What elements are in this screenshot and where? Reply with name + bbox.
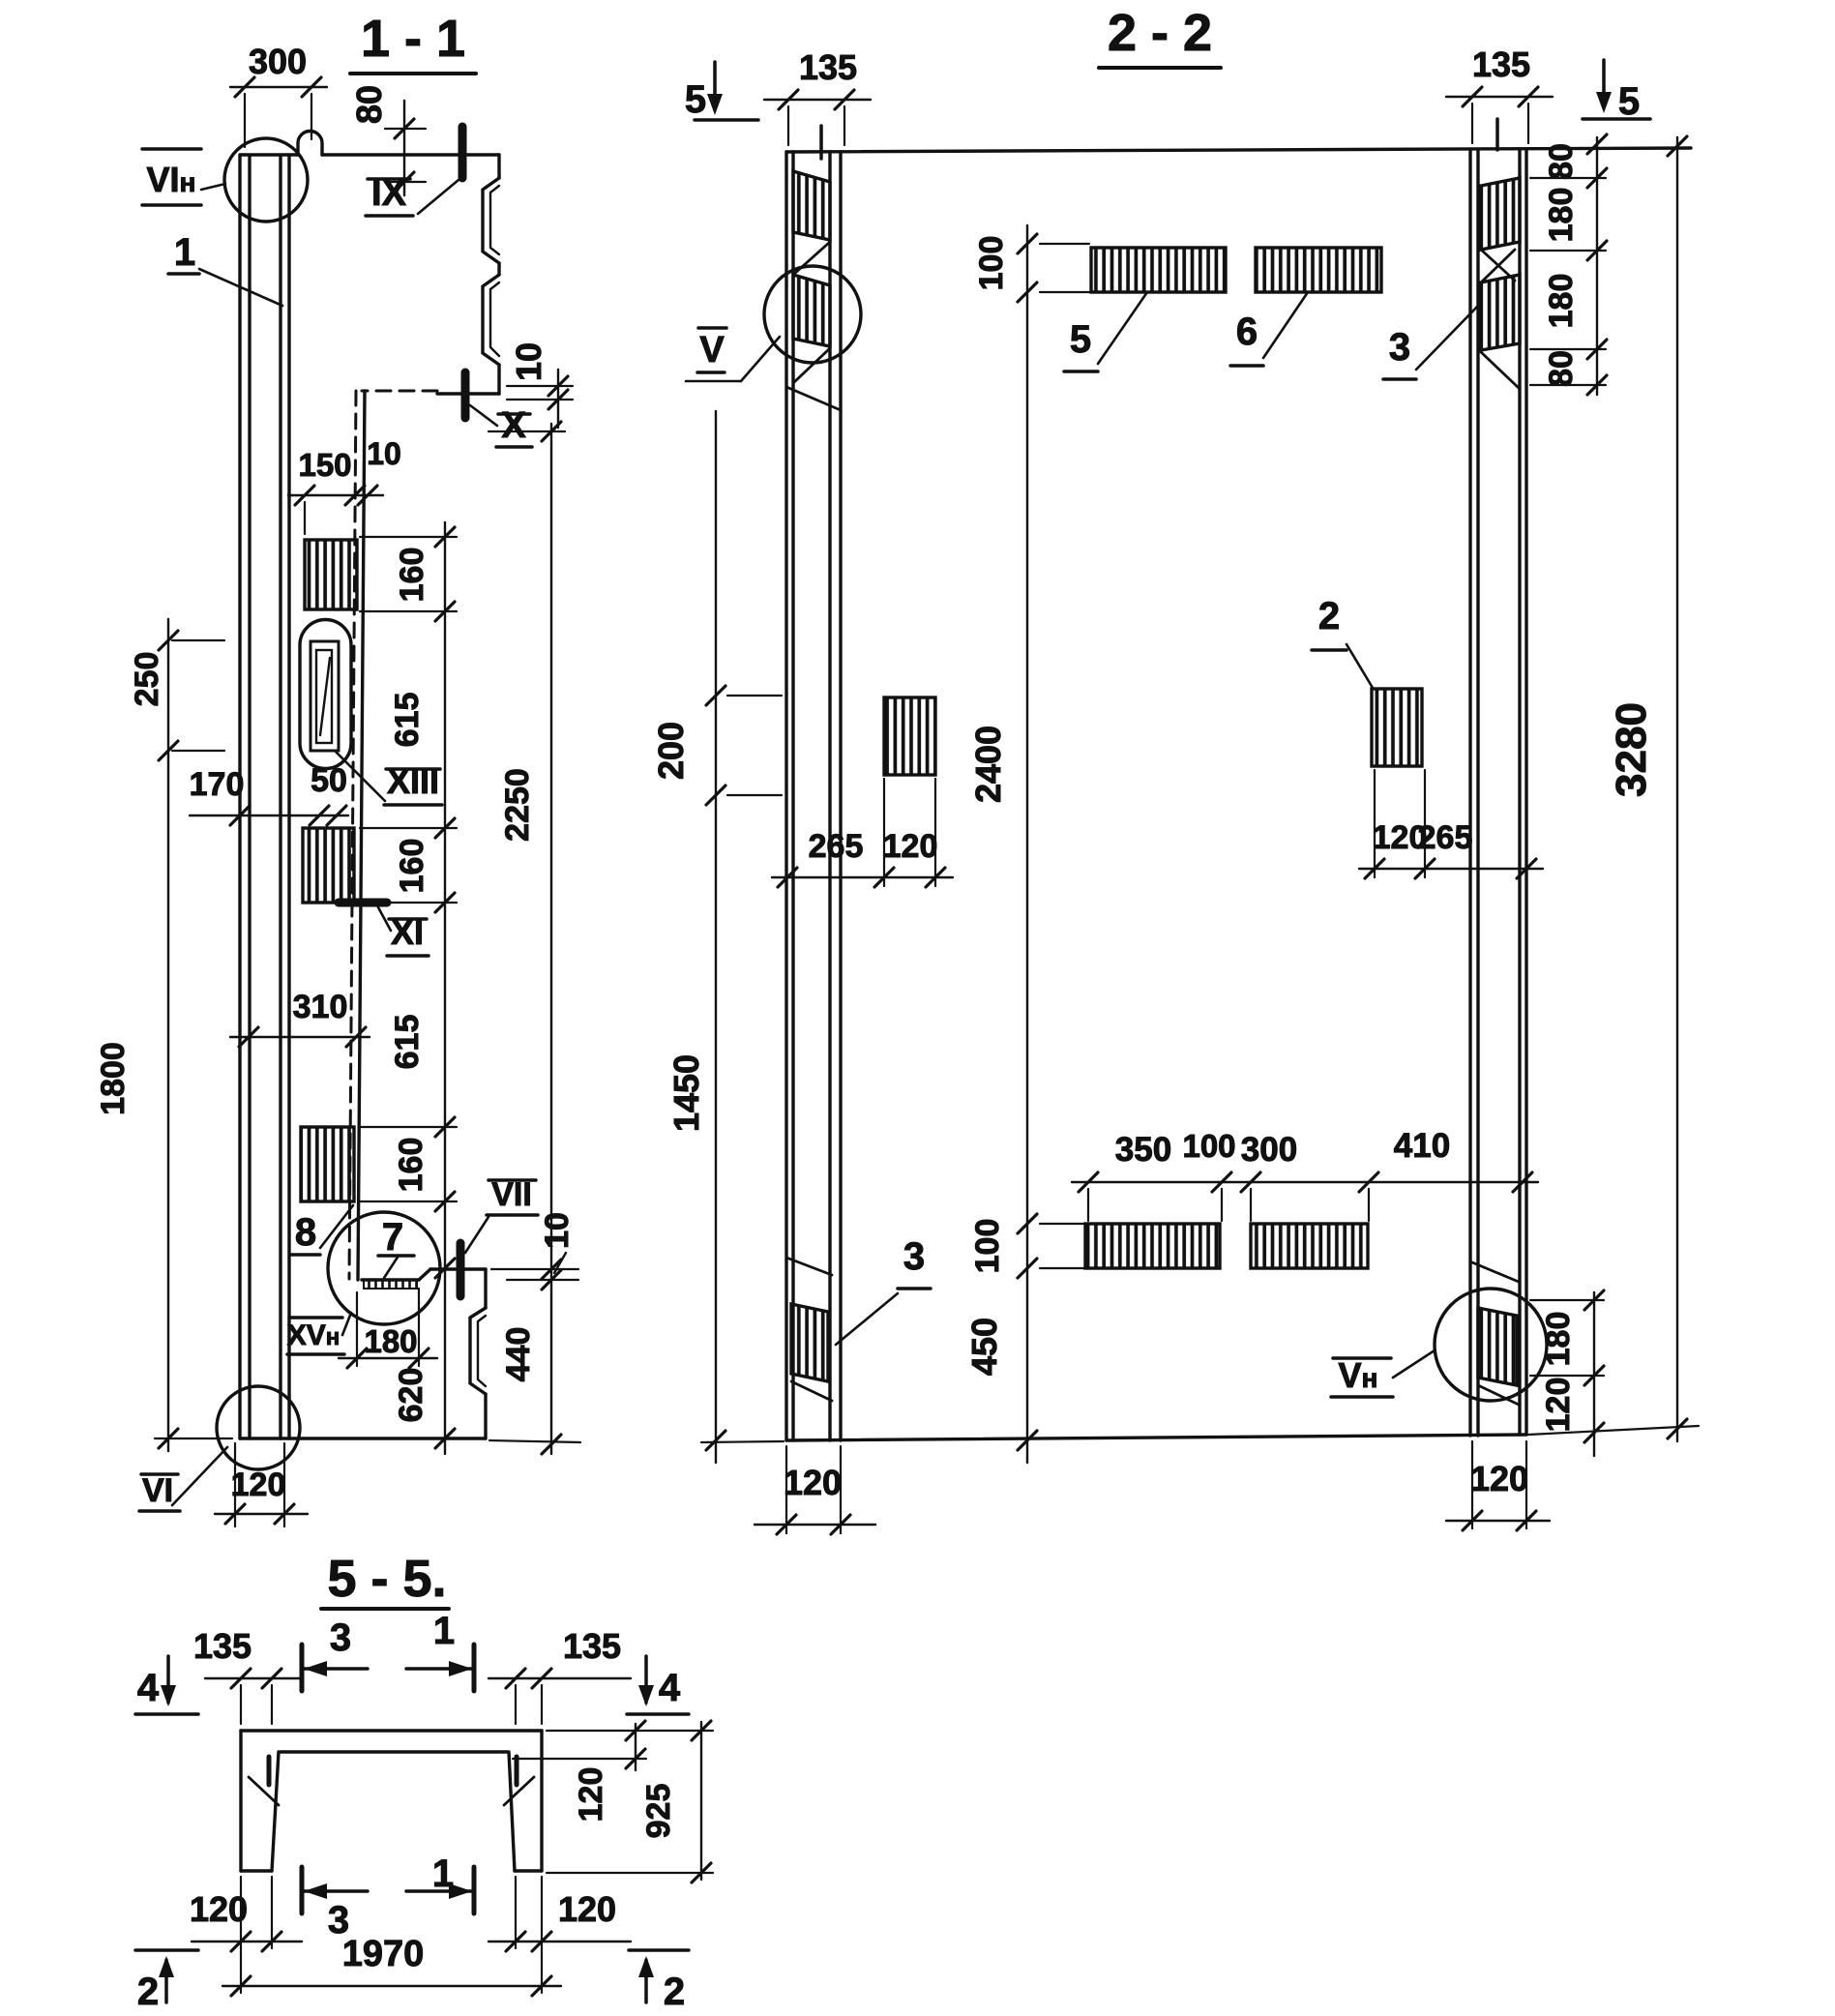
svg-text:350: 350 (1115, 1131, 1171, 1169)
svg-text:300: 300 (249, 42, 307, 81)
svg-text:8: 8 (295, 1211, 316, 1254)
svg-text:120: 120 (231, 1467, 286, 1503)
svg-text:120: 120 (1470, 1459, 1528, 1498)
svg-text:1: 1 (174, 231, 195, 274)
svg-text:1 - 1: 1 - 1 (361, 10, 465, 68)
svg-text:135: 135 (563, 1626, 621, 1666)
svg-text:135: 135 (193, 1626, 252, 1666)
svg-text:1800: 1800 (95, 1042, 132, 1115)
svg-text:50: 50 (311, 762, 347, 799)
svg-text:3280: 3280 (1608, 702, 1655, 797)
svg-text:6: 6 (1236, 311, 1258, 353)
svg-text:180: 180 (1540, 1312, 1577, 1367)
svg-text:180: 180 (1543, 188, 1580, 243)
svg-text:120: 120 (573, 1767, 609, 1823)
svg-text:100: 100 (973, 236, 1010, 291)
svg-text:160: 160 (393, 1138, 429, 1193)
svg-text:VI: VI (142, 1472, 173, 1509)
svg-text:XIII: XIII (387, 761, 439, 801)
svg-text:615: 615 (389, 1015, 426, 1070)
svg-text:150: 150 (298, 447, 351, 483)
svg-text:450: 450 (964, 1318, 1004, 1376)
svg-text:2: 2 (664, 1971, 685, 2013)
svg-text:160: 160 (394, 548, 430, 603)
svg-text:265: 265 (809, 828, 864, 865)
svg-text:120: 120 (784, 1463, 842, 1502)
svg-text:250: 250 (129, 652, 165, 707)
svg-text:170: 170 (190, 766, 245, 803)
svg-text:10: 10 (367, 436, 401, 471)
svg-text:80: 80 (1543, 143, 1580, 180)
svg-text:3: 3 (1389, 326, 1410, 369)
svg-text:V: V (699, 330, 725, 371)
svg-text:265: 265 (1418, 819, 1473, 856)
svg-text:615: 615 (389, 693, 426, 748)
svg-text:925: 925 (640, 1784, 677, 1839)
svg-text:120: 120 (190, 1889, 248, 1929)
svg-text:100: 100 (1182, 1128, 1235, 1164)
svg-text:120: 120 (558, 1889, 616, 1929)
svg-text:440: 440 (500, 1327, 537, 1382)
svg-text:180: 180 (364, 1323, 417, 1359)
svg-text:2: 2 (137, 1971, 159, 2013)
svg-text:80: 80 (1543, 350, 1580, 387)
svg-text:5 - 5.: 5 - 5. (327, 1550, 446, 1608)
svg-text:1970: 1970 (342, 1934, 425, 1974)
svg-text:4: 4 (659, 1667, 681, 1709)
svg-text:160: 160 (394, 839, 430, 894)
svg-text:5: 5 (1618, 80, 1640, 123)
svg-text:135: 135 (1472, 44, 1530, 84)
svg-text:2 - 2: 2 - 2 (1108, 4, 1212, 62)
svg-text:4: 4 (137, 1667, 160, 1709)
svg-text:10: 10 (509, 342, 548, 381)
svg-text:410: 410 (1394, 1127, 1450, 1165)
svg-text:1450: 1450 (666, 1054, 706, 1132)
svg-text:80: 80 (349, 85, 389, 124)
svg-text:X: X (501, 405, 526, 446)
svg-text:620: 620 (393, 1368, 429, 1423)
svg-text:10: 10 (539, 1212, 576, 1249)
svg-text:120: 120 (1540, 1378, 1577, 1433)
svg-text:180: 180 (1543, 274, 1580, 329)
svg-text:200: 200 (651, 722, 691, 780)
svg-text:135: 135 (799, 47, 857, 87)
svg-text:1: 1 (433, 1610, 455, 1652)
svg-text:5: 5 (1070, 318, 1091, 361)
svg-text:2250: 2250 (499, 768, 536, 842)
svg-text:300: 300 (1241, 1131, 1297, 1169)
svg-text:120: 120 (883, 828, 938, 865)
svg-text:2400: 2400 (968, 726, 1008, 803)
svg-text:5: 5 (685, 78, 706, 121)
svg-text:2: 2 (1318, 595, 1340, 637)
svg-text:100: 100 (969, 1219, 1006, 1274)
svg-text:310: 310 (293, 989, 348, 1025)
svg-text:7: 7 (382, 1216, 403, 1259)
svg-text:3: 3 (330, 1616, 351, 1659)
svg-text:XVн: XVн (287, 1319, 340, 1351)
svg-text:3: 3 (903, 1235, 925, 1278)
